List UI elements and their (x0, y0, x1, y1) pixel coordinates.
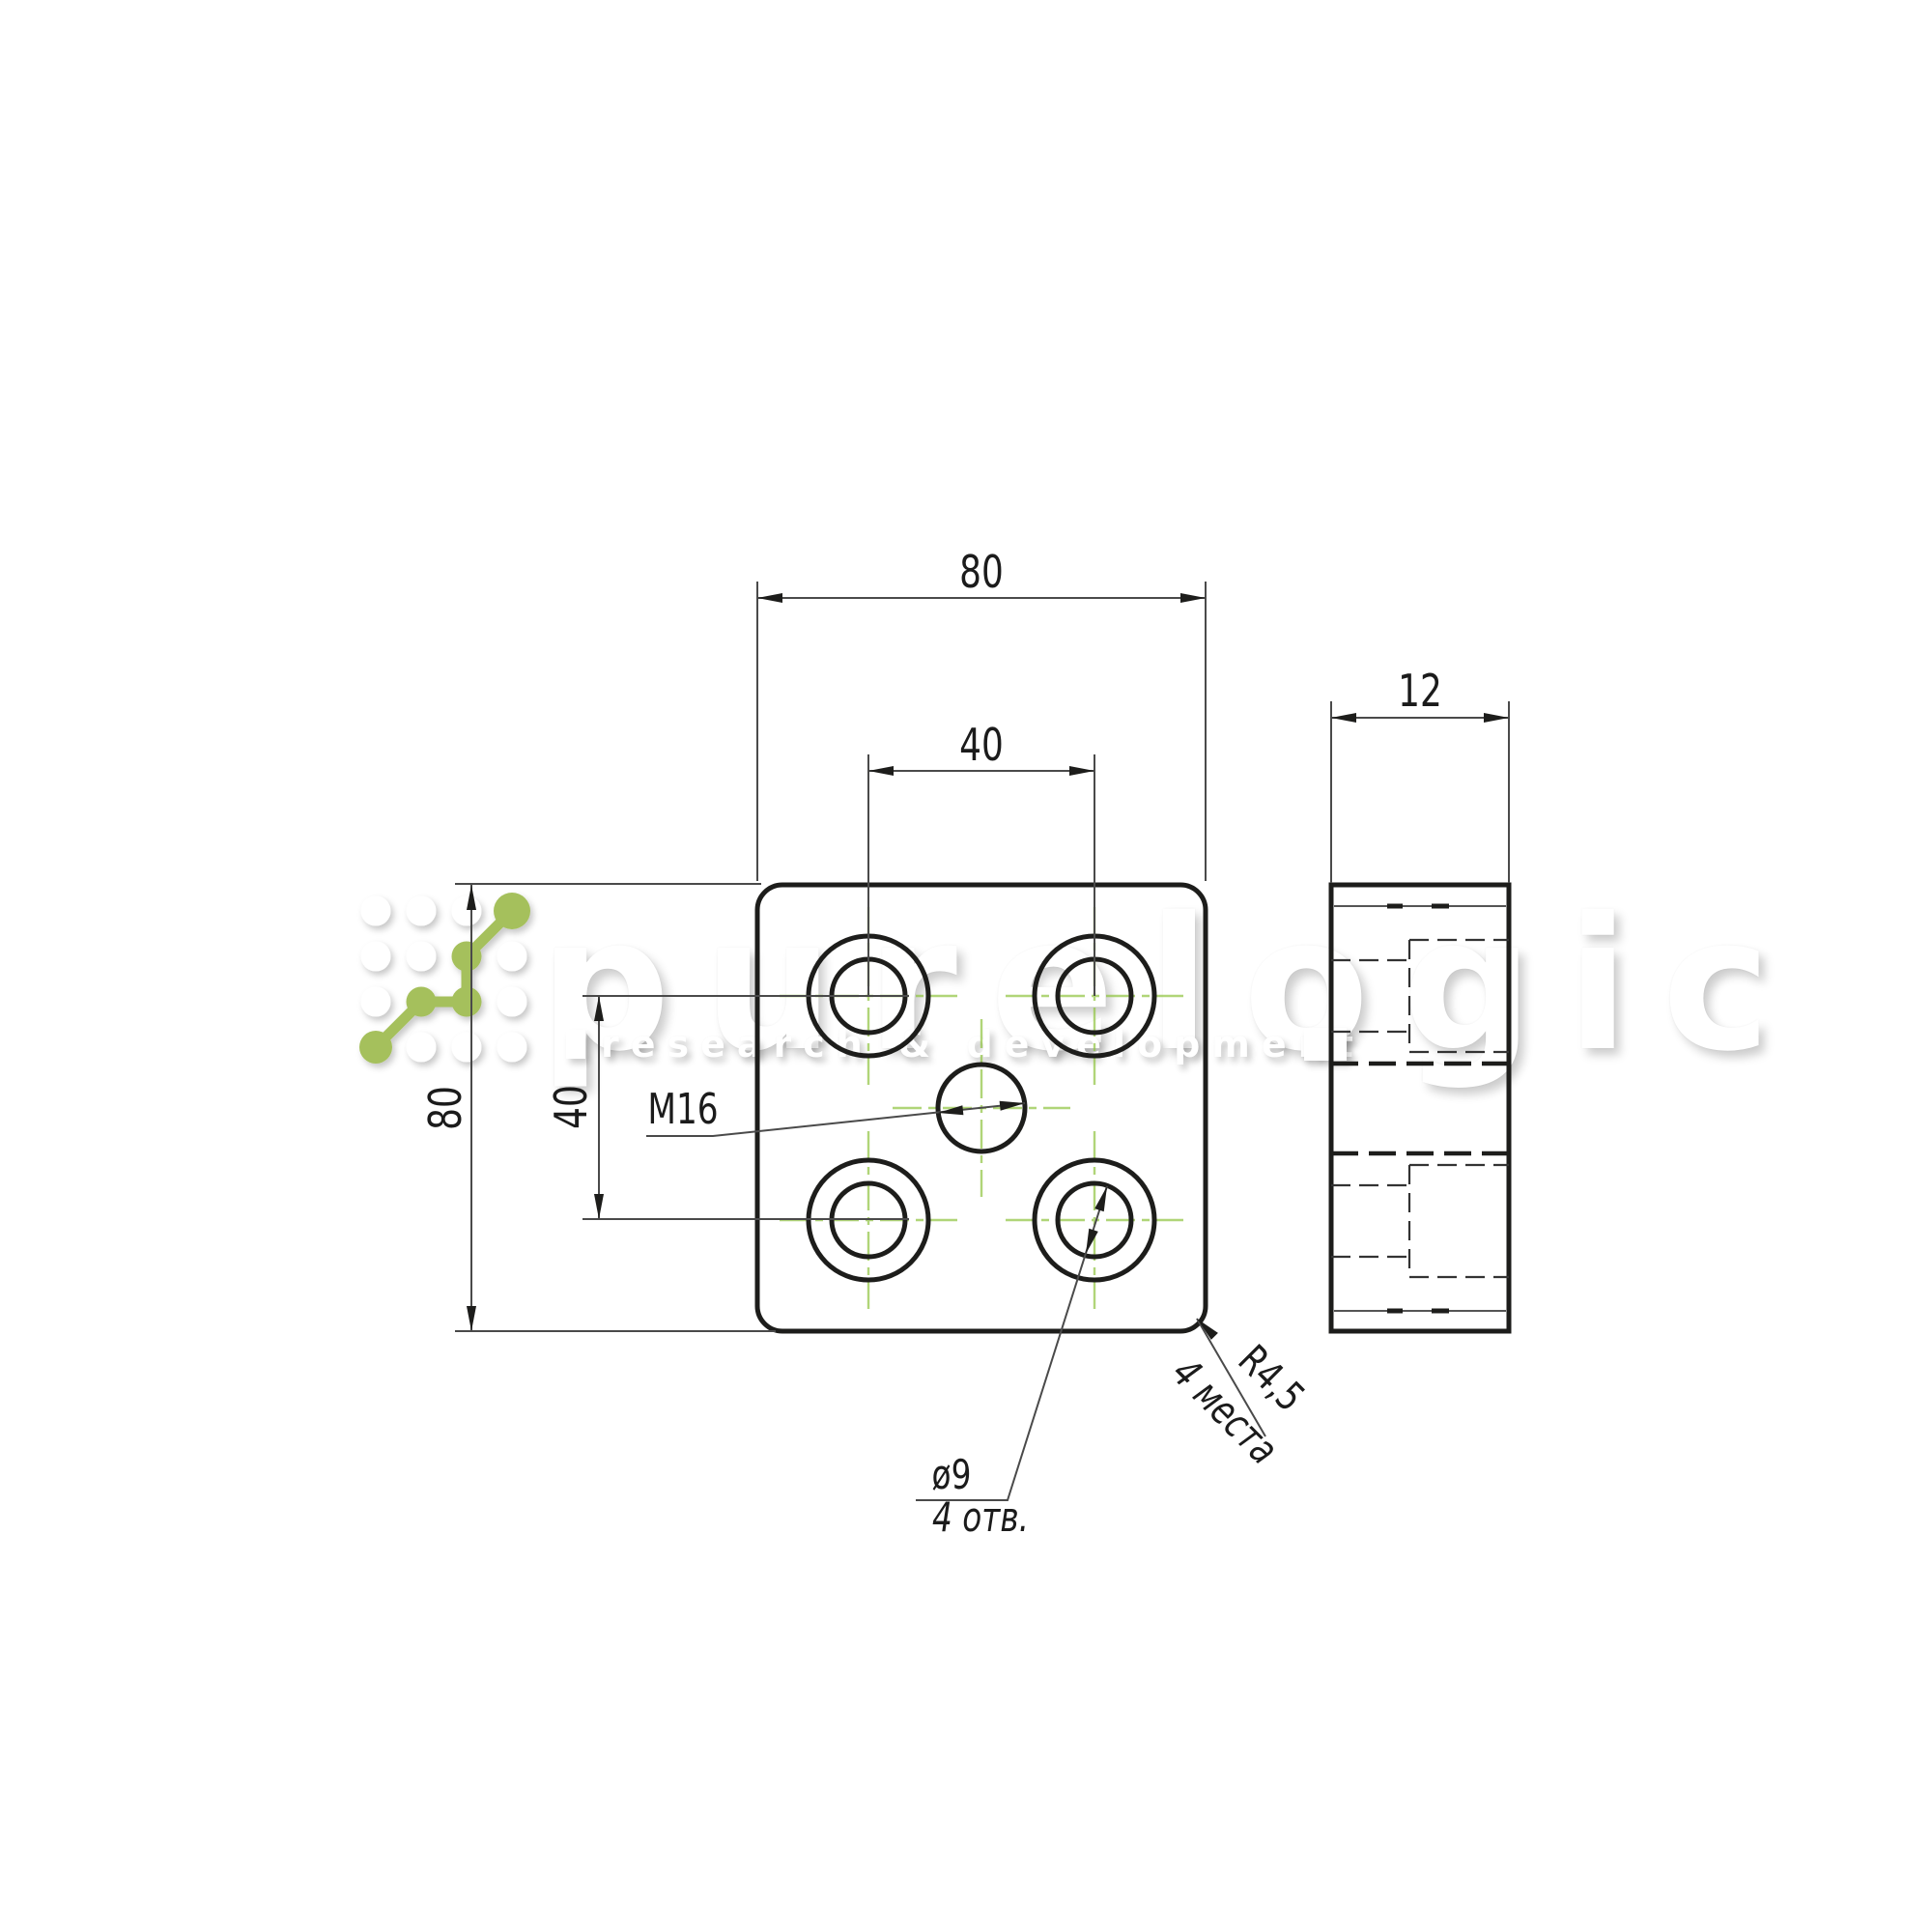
dimension-arrows (467, 593, 1509, 1340)
dim-hole-spacing-x-label: 40 (959, 723, 1004, 767)
side-edge-dashes (1387, 906, 1449, 1311)
dim-height-label: 80 (423, 1086, 468, 1130)
dim-width-label: 80 (959, 550, 1004, 594)
hole-diameter-label: ø9 (932, 1455, 972, 1495)
thread-label: M16 (647, 1089, 718, 1131)
side-view (1331, 885, 1509, 1331)
hidden-hole-lines (1331, 940, 1509, 1277)
side-outline (1331, 885, 1509, 1331)
hole-count-label: 4 отв. (932, 1497, 1029, 1538)
technical-drawing (0, 0, 1932, 1932)
hidden-thread-hole-lines (1331, 1064, 1509, 1153)
dim-thickness-label: 12 (1398, 668, 1442, 713)
dim-hole-spacing-y-label: 40 (549, 1085, 593, 1129)
drawing-canvas: purelogic research & development (0, 0, 1932, 1932)
